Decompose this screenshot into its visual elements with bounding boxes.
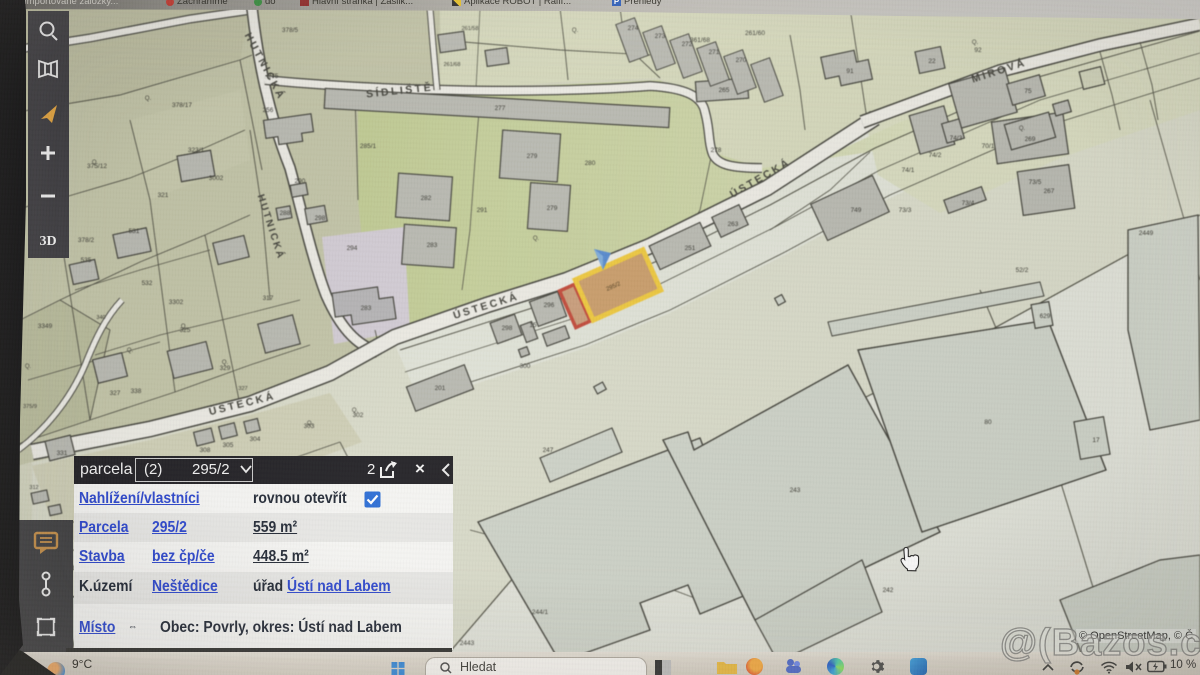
svg-text:Q.: Q. [1019,126,1026,132]
svg-text:73/3: 73/3 [899,207,912,214]
svg-text:338: 338 [131,388,142,395]
svg-text:Q.: Q. [352,408,359,414]
svg-text:3302: 3302 [169,299,184,306]
svg-text:243: 243 [790,487,801,494]
svg-text:263: 263 [728,221,739,228]
svg-text:317: 317 [263,295,274,302]
svg-text:308: 308 [200,447,211,454]
svg-text:375/9: 375/9 [23,404,37,410]
svg-text:52/2: 52/2 [1016,267,1029,274]
svg-text:312: 312 [29,485,38,491]
svg-text:305: 305 [223,442,234,449]
svg-text:378/5: 378/5 [282,27,299,34]
svg-text:74/1: 74/1 [902,167,915,174]
svg-text:323/1: 323/1 [188,147,205,154]
svg-text:331: 331 [57,450,68,457]
svg-text:277: 277 [495,105,506,112]
svg-text:3349: 3349 [38,323,53,330]
svg-text:278: 278 [711,147,722,154]
svg-text:261/60: 261/60 [745,30,765,37]
svg-text:298: 298 [502,325,513,332]
svg-text:73/5: 73/5 [1029,179,1042,186]
svg-text:2449: 2449 [1139,230,1154,237]
svg-text:265: 265 [719,87,730,94]
svg-text:532: 532 [142,280,153,287]
svg-text:329: 329 [220,365,231,372]
svg-text:75: 75 [1024,88,1032,95]
svg-text:Q.: Q. [145,96,152,102]
svg-text:2443: 2443 [460,640,475,647]
svg-text:74/3: 74/3 [950,135,963,142]
svg-text:3002: 3002 [209,175,224,182]
svg-text:378/17: 378/17 [172,102,192,109]
svg-text:279: 279 [547,205,558,212]
svg-text:282: 282 [421,195,432,202]
svg-text:80: 80 [984,419,992,426]
svg-text:Q.: Q. [181,324,188,330]
svg-text:270: 270 [736,57,747,64]
svg-text:256: 256 [263,107,274,114]
svg-text:285/1: 285/1 [360,143,377,150]
svg-text:261/58: 261/58 [462,26,479,32]
svg-text:271: 271 [709,49,720,56]
svg-text:3D: 3D [39,234,56,249]
svg-text:275: 275 [268,73,279,80]
svg-text:Q.: Q. [572,28,579,34]
svg-text:247: 247 [543,447,554,454]
svg-text:279: 279 [527,153,538,160]
svg-text:Q.: Q. [127,348,134,354]
svg-text:73/4: 73/4 [962,200,975,207]
svg-text:274: 274 [628,25,639,32]
svg-text:269: 269 [1025,136,1036,143]
svg-text:Q.: Q. [92,160,99,166]
svg-text:92: 92 [974,47,982,54]
svg-text:15: 15 [529,322,537,329]
svg-text:629: 629 [1040,313,1051,320]
svg-text:Q.: Q. [972,40,979,46]
svg-text:327: 327 [238,386,247,392]
svg-text:300: 300 [520,363,531,370]
svg-text:17: 17 [1092,437,1100,444]
svg-text:294: 294 [347,245,358,252]
svg-text:Q.: Q. [307,421,314,427]
svg-text:273: 273 [655,33,666,40]
svg-text:304: 304 [250,436,261,443]
svg-text:340: 340 [96,315,105,321]
svg-text:327: 327 [110,390,121,397]
svg-text:261/68: 261/68 [444,62,461,68]
svg-text:283: 283 [361,305,372,312]
svg-text:296: 296 [544,302,555,309]
svg-text:298: 298 [315,215,326,222]
svg-text:288: 288 [280,210,291,217]
svg-text:70/1: 70/1 [982,143,995,150]
svg-text:Q.: Q. [533,236,540,242]
svg-text:Q.: Q. [25,364,32,370]
svg-text:361/68: 361/68 [690,37,710,44]
svg-text:267: 267 [1044,188,1055,195]
svg-text:280: 280 [585,160,596,167]
svg-text:91: 91 [846,68,854,75]
svg-text:749: 749 [851,207,862,214]
svg-text:242: 242 [883,587,894,594]
svg-text:535: 535 [81,257,92,264]
svg-text:283: 283 [427,242,438,249]
svg-text:74/2: 74/2 [929,152,942,159]
svg-text:22: 22 [928,58,936,65]
svg-text:531: 531 [129,228,140,235]
svg-text:321: 321 [158,192,169,199]
svg-text:Q.: Q. [222,360,229,366]
svg-text:244/1: 244/1 [532,609,549,616]
svg-text:201: 201 [435,385,446,392]
svg-text:251: 251 [685,245,696,252]
svg-text:291: 291 [477,207,488,214]
svg-text:378/2: 378/2 [78,237,95,244]
svg-text:290: 290 [295,178,306,185]
